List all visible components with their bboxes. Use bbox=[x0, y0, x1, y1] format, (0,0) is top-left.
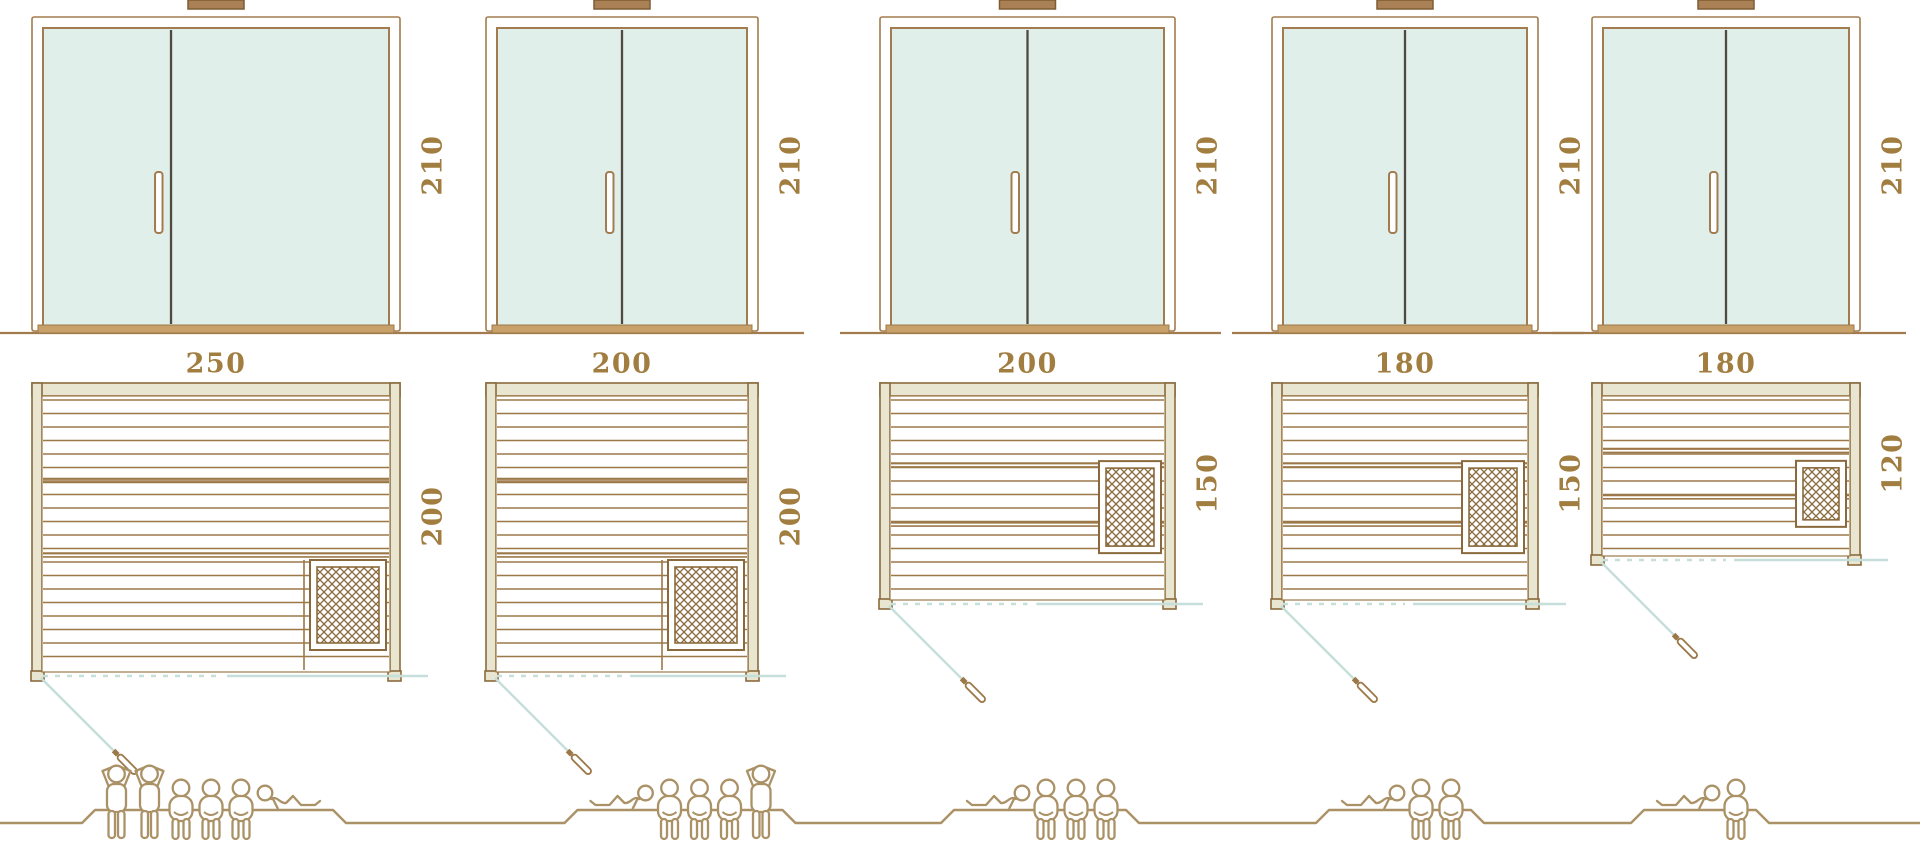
sauna-4-height-label: 210 bbox=[1558, 135, 1585, 196]
door-handle-icon bbox=[1012, 172, 1020, 233]
heater-icon bbox=[668, 560, 744, 650]
door-swing bbox=[41, 676, 428, 775]
door-handle-icon bbox=[1389, 172, 1397, 233]
sauna-1-depth-label: 200 bbox=[420, 486, 447, 547]
sauna-size-diagram: 250 200 200 180 180 210 210 210 210 210 … bbox=[0, 0, 1920, 856]
door-handle-icon bbox=[606, 172, 614, 233]
glass-door-pane bbox=[43, 28, 389, 326]
sauna-5-width-label: 180 bbox=[1696, 351, 1757, 378]
chimney-icon bbox=[594, 0, 650, 9]
open-door-handle-icon bbox=[959, 676, 986, 703]
door-handle-icon bbox=[1710, 172, 1718, 233]
sauna-5-door-elevation bbox=[1552, 0, 1906, 333]
open-door-handle-icon bbox=[1351, 676, 1378, 703]
door-swing bbox=[1281, 604, 1566, 703]
door-swing bbox=[1601, 560, 1888, 659]
sauna-3-door-elevation bbox=[840, 0, 1221, 333]
sauna-2-width-label: 200 bbox=[592, 351, 653, 378]
open-door-handle-icon bbox=[1671, 632, 1698, 659]
door-handle-icon bbox=[155, 172, 163, 233]
sauna-1-door-elevation bbox=[0, 0, 446, 333]
sauna-5-depth-label: 120 bbox=[1880, 432, 1907, 493]
door-swing bbox=[495, 676, 786, 775]
sauna-2-floor-plan bbox=[485, 383, 786, 775]
sauna-4-width-label: 180 bbox=[1375, 351, 1436, 378]
chimney-icon bbox=[1698, 0, 1754, 9]
sauna-3-floor-plan bbox=[879, 383, 1203, 703]
sauna-3-height-label: 210 bbox=[1195, 135, 1222, 196]
sauna-2-capacity-figures bbox=[591, 766, 776, 839]
heater-icon bbox=[1796, 461, 1846, 527]
ground-terrain-line bbox=[0, 810, 1920, 823]
sauna-4-floor-plan bbox=[1271, 383, 1566, 703]
sauna-4-depth-label: 150 bbox=[1558, 452, 1585, 513]
door-swing bbox=[889, 604, 1203, 703]
sauna-1-width-label: 250 bbox=[186, 351, 247, 378]
sauna-2-door-elevation bbox=[446, 0, 804, 333]
sauna-4-door-elevation bbox=[1232, 0, 1584, 333]
sauna-5-height-label: 210 bbox=[1880, 135, 1907, 196]
sauna-3-depth-label: 150 bbox=[1195, 452, 1222, 513]
heater-icon bbox=[1462, 461, 1524, 553]
scene-graphics bbox=[0, 0, 1920, 856]
sauna-5-floor-plan bbox=[1591, 383, 1888, 659]
sauna-3-width-label: 200 bbox=[997, 351, 1058, 378]
sauna-1-capacity-figures bbox=[103, 766, 321, 839]
sauna-1-height-label: 210 bbox=[420, 135, 447, 196]
heater-icon bbox=[310, 560, 386, 650]
sauna-1-floor-plan bbox=[31, 383, 428, 775]
heater-icon bbox=[1099, 461, 1161, 553]
sauna-2-depth-label: 200 bbox=[778, 486, 805, 547]
chimney-icon bbox=[1377, 0, 1433, 9]
open-door-handle-icon bbox=[565, 748, 592, 775]
chimney-icon bbox=[1000, 0, 1056, 9]
sauna-2-height-label: 210 bbox=[778, 135, 805, 196]
chimney-icon bbox=[188, 0, 244, 9]
